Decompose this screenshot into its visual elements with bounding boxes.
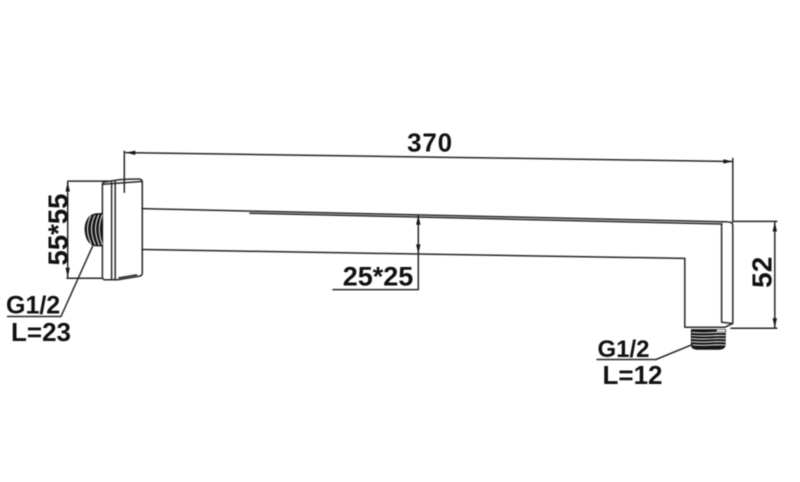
svg-text:G1/2: G1/2 <box>6 292 60 320</box>
svg-text:55*55: 55*55 <box>42 194 73 266</box>
svg-text:25*25: 25*25 <box>343 262 414 292</box>
svg-text:52: 52 <box>746 257 777 288</box>
svg-text:L=23: L=23 <box>11 317 71 347</box>
svg-text:G1/2: G1/2 <box>598 336 650 363</box>
svg-text:370: 370 <box>407 128 453 158</box>
svg-text:L=12: L=12 <box>603 360 663 390</box>
